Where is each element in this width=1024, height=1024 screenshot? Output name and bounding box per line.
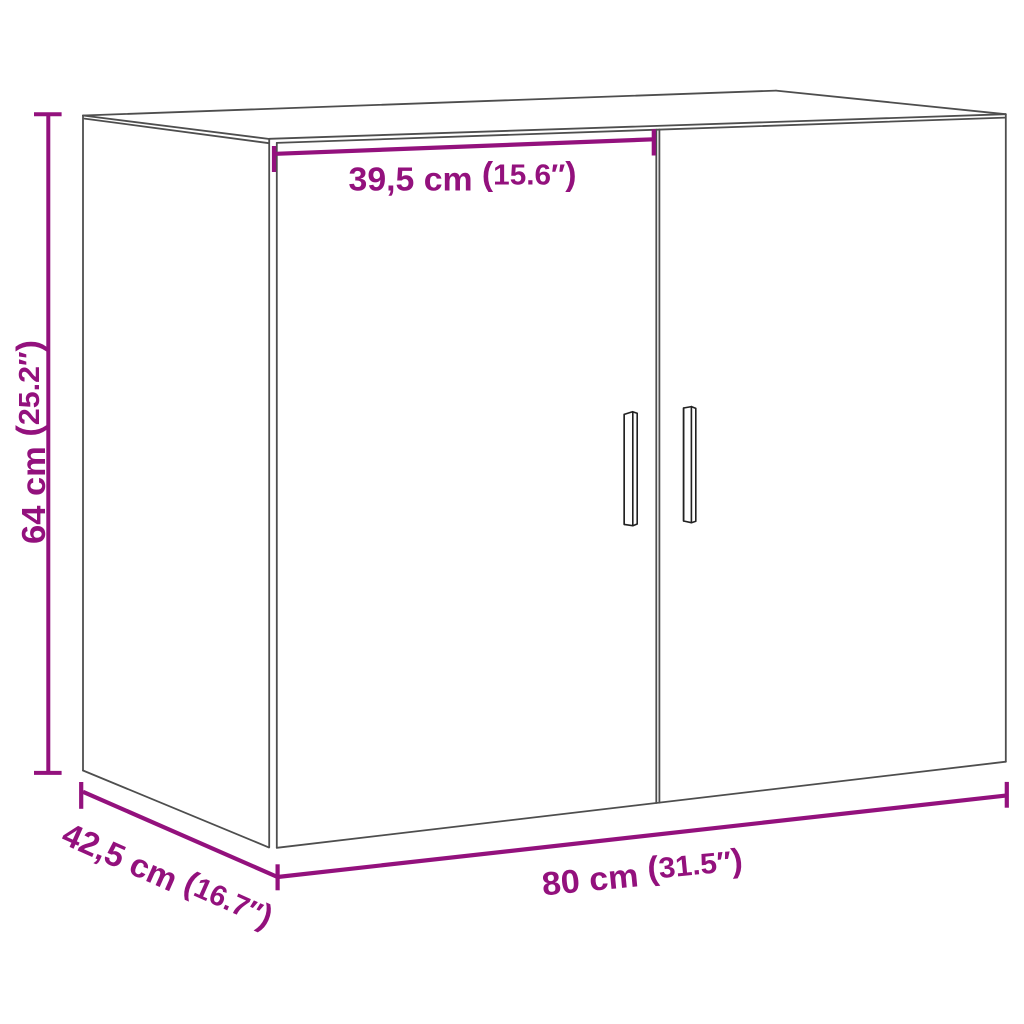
svg-text:80 cm (31.5″): 80 cm (31.5″) bbox=[540, 841, 745, 902]
svg-text:39,5 cm (15.6″): 39,5 cm (15.6″) bbox=[349, 155, 577, 197]
svg-text:64 cm (25.2″): 64 cm (25.2″) bbox=[10, 340, 52, 544]
